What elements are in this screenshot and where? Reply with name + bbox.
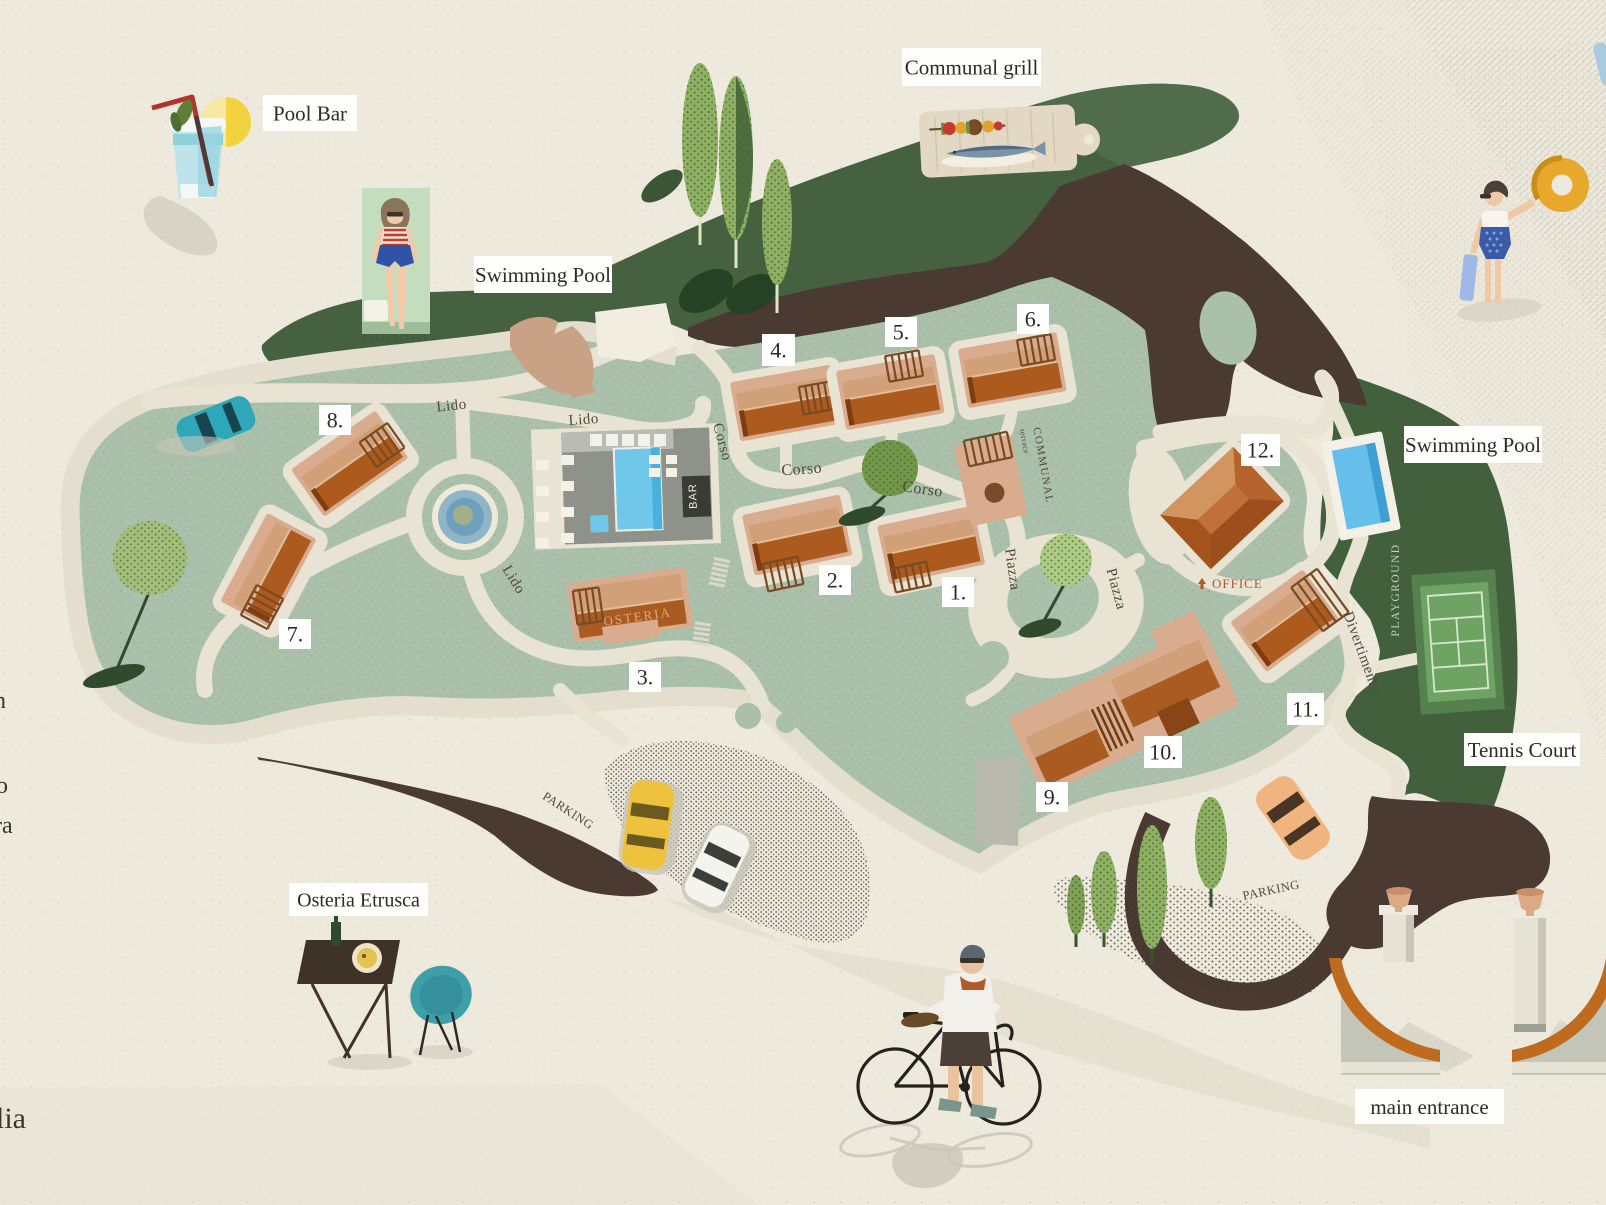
svg-text:Pool Bar: Pool Bar: [273, 101, 347, 125]
svg-text:8.: 8.: [327, 407, 344, 432]
svg-text:1.: 1.: [950, 579, 967, 604]
svg-text:Corso: Corso: [781, 460, 823, 480]
svg-text:2.: 2.: [827, 567, 844, 592]
svg-text:Communal grill: Communal grill: [905, 55, 1039, 79]
svg-text:Swimming Pool: Swimming Pool: [475, 263, 611, 287]
svg-text:3.: 3.: [637, 664, 654, 689]
svg-text:lia: lia: [0, 1102, 26, 1135]
svg-text:4.: 4.: [770, 337, 787, 362]
svg-text:main entrance: main entrance: [1370, 1095, 1488, 1119]
svg-text:Osteria Etrusca: Osteria Etrusca: [297, 890, 420, 912]
svg-text:5.: 5.: [893, 319, 910, 344]
svg-text:BAR: BAR: [687, 483, 700, 509]
svg-text:OFFICE: OFFICE: [1212, 576, 1263, 591]
svg-text:Tennis Court: Tennis Court: [1468, 738, 1577, 762]
svg-text:7.: 7.: [287, 621, 304, 646]
svg-text:6.: 6.: [1025, 306, 1042, 331]
svg-text:11.: 11.: [1292, 696, 1319, 721]
svg-text:PLAYGROUND: PLAYGROUND: [1390, 543, 1402, 636]
svg-text:9.: 9.: [1044, 784, 1061, 809]
svg-text:Lido: Lido: [436, 396, 468, 415]
svg-text:Swimming Pool: Swimming Pool: [1405, 433, 1541, 457]
svg-text:10.: 10.: [1149, 739, 1177, 764]
svg-text:ra: ra: [0, 813, 13, 839]
svg-text:o: o: [0, 773, 8, 799]
svg-text:n: n: [0, 688, 6, 714]
svg-text:12.: 12.: [1247, 437, 1275, 462]
svg-text:Lido: Lido: [568, 411, 599, 429]
